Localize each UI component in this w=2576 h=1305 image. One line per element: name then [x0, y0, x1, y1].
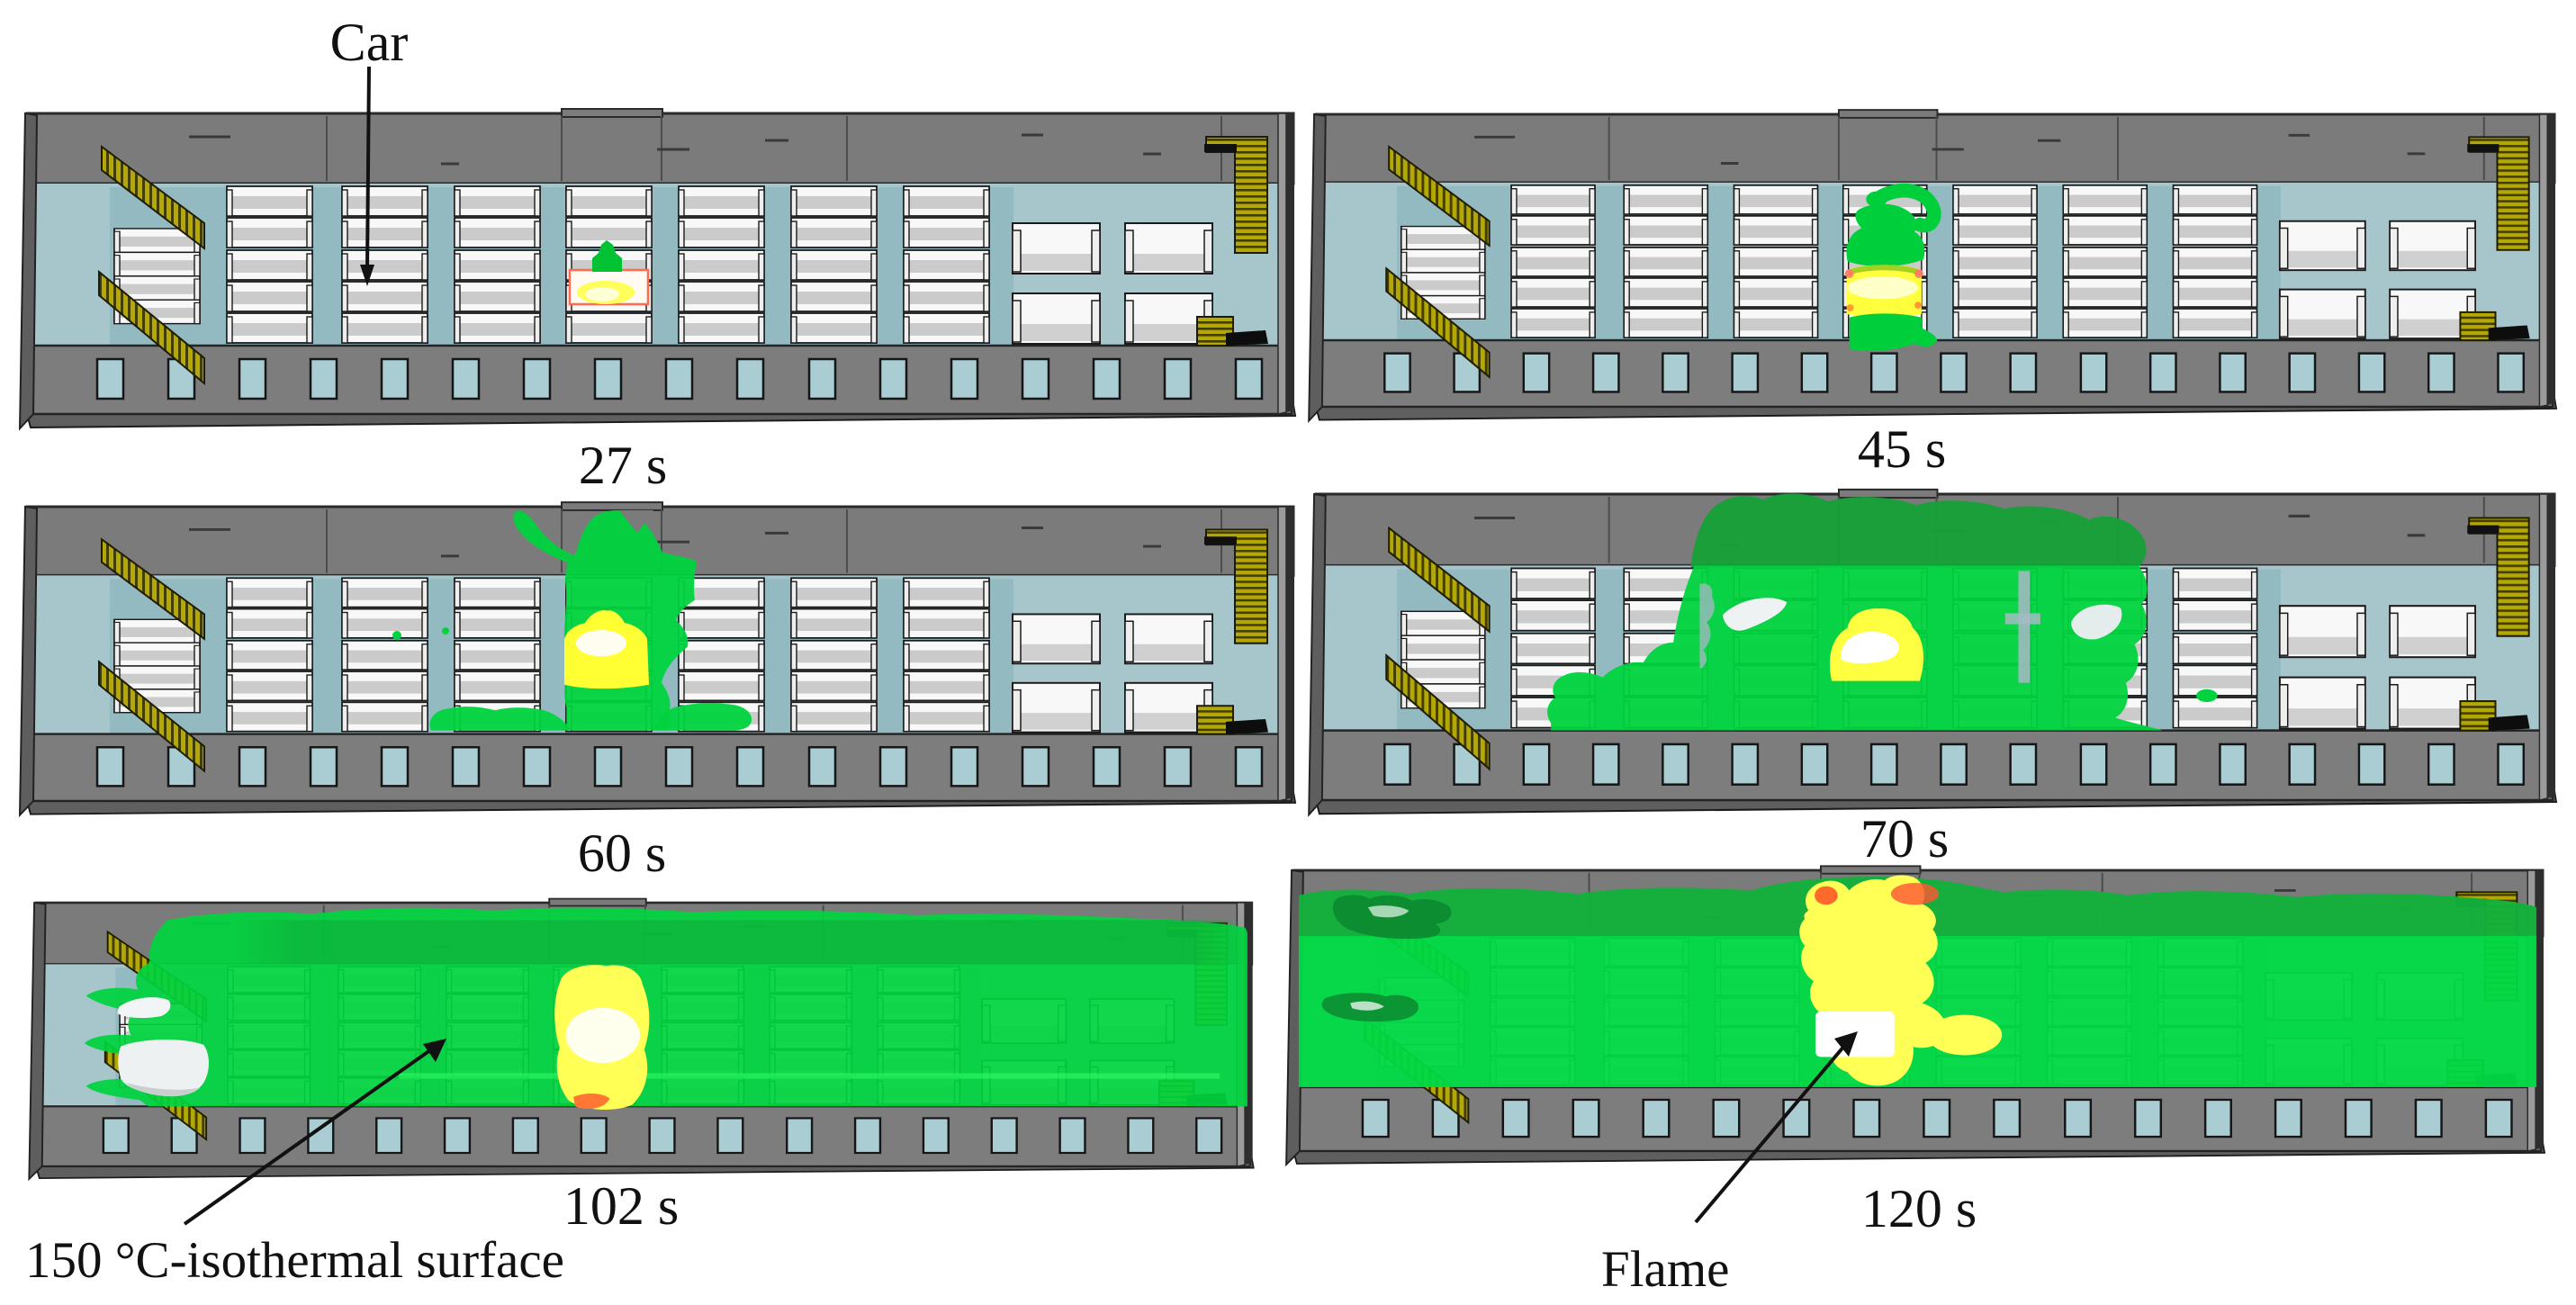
svg-text:150 °C-isothermal surface: 150 °C-isothermal surface — [25, 1232, 564, 1289]
svg-text:70 s: 70 s — [1860, 809, 1949, 868]
svg-text:Car: Car — [330, 13, 409, 72]
svg-text:Flame: Flame — [1601, 1241, 1729, 1298]
svg-text:60 s: 60 s — [578, 823, 666, 883]
svg-text:27 s: 27 s — [579, 436, 667, 495]
svg-text:120 s: 120 s — [1861, 1179, 1977, 1238]
svg-text:102 s: 102 s — [563, 1176, 679, 1236]
svg-text:45 s: 45 s — [1858, 419, 1946, 479]
